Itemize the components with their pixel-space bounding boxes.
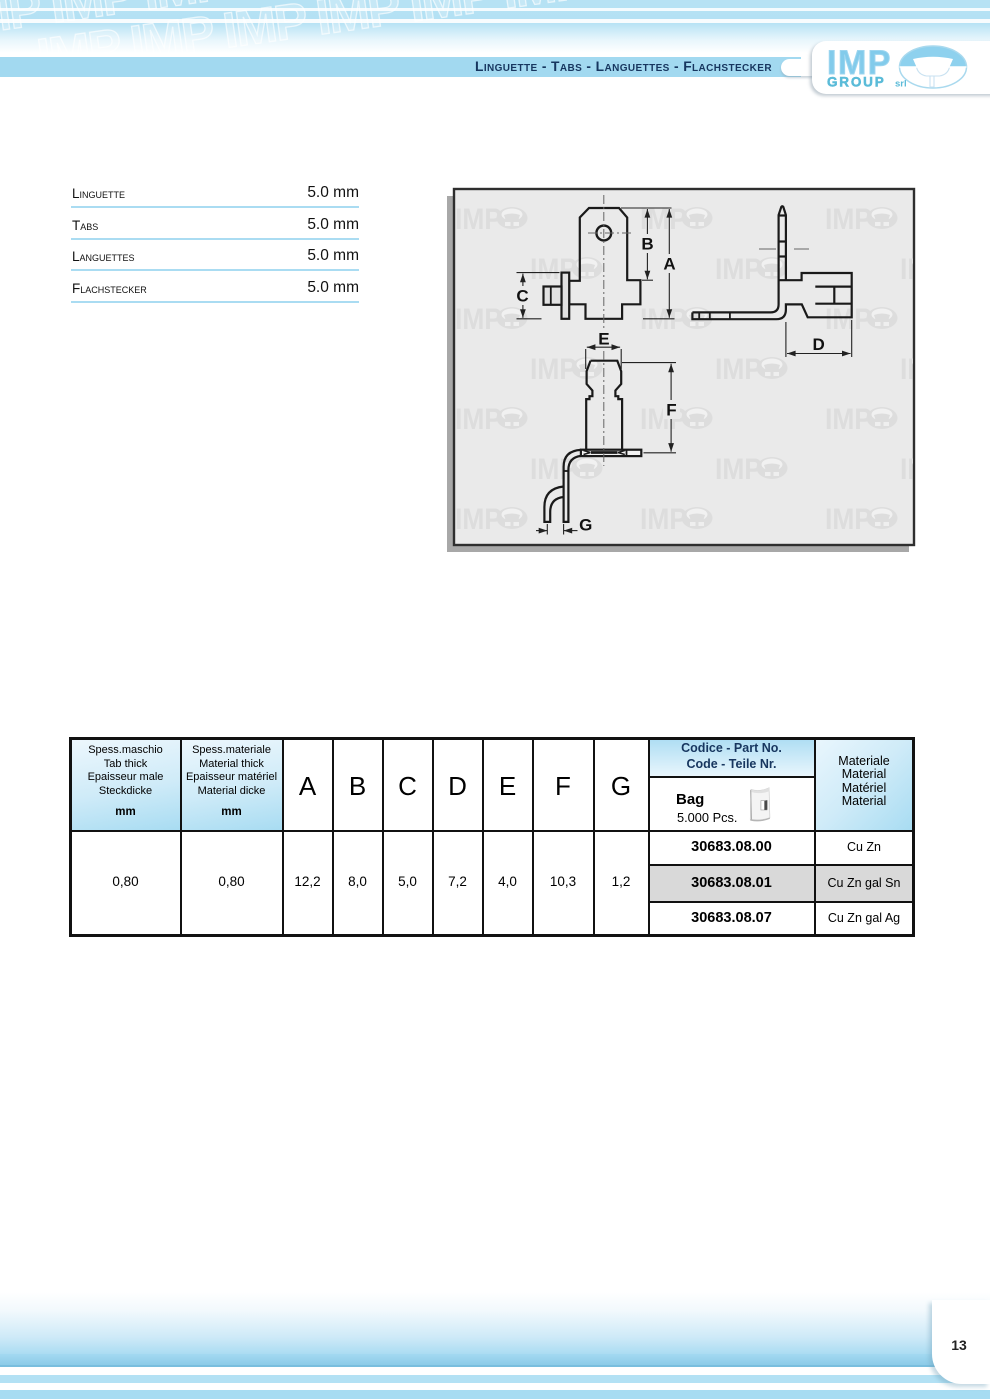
svg-text:GROUP: GROUP bbox=[827, 75, 886, 90]
svg-text:C: C bbox=[516, 287, 528, 306]
svg-text:srl: srl bbox=[895, 79, 907, 90]
svg-text:G: G bbox=[579, 516, 592, 535]
svg-text:B: B bbox=[641, 235, 653, 254]
svg-text:A: A bbox=[663, 255, 675, 274]
svg-text:F: F bbox=[666, 401, 676, 420]
svg-text:E: E bbox=[598, 330, 609, 349]
svg-text:D: D bbox=[813, 335, 825, 354]
